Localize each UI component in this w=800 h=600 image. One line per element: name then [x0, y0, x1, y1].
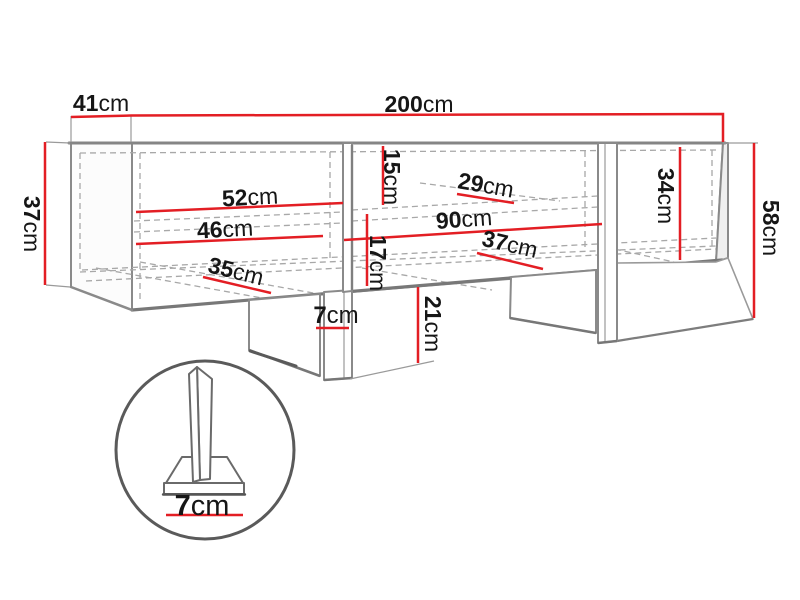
dimension-label-leg-detail-base-width: 7cm [175, 490, 230, 522]
dimension-label-leg-height: 21cm [420, 296, 446, 352]
dimension-label-middle-lower-gap: 17cm [365, 235, 391, 291]
dimension-label-leg-width: 7cm [313, 302, 358, 329]
dimension-diagram: 41cm200cm37cm58cm52cm46cm35cm15cm29cm90c… [0, 0, 800, 600]
diagram-canvas: 41cm200cm37cm58cm52cm46cm35cm15cm29cm90c… [0, 0, 800, 600]
dimension-label-height-left: 37cm [19, 196, 45, 252]
dimension-label-left-shelf-lower-width: 46cm [196, 215, 254, 244]
dimension-label-width-total: 200cm [384, 91, 453, 117]
right-leg [510, 270, 596, 333]
right-partition [598, 143, 617, 343]
dimension-line-width-total [131, 114, 723, 142]
dimension-label-right-inner-height: 34cm [653, 168, 679, 224]
dimension-label-middle-upper-gap: 15cm [379, 149, 405, 205]
middle-partition [343, 143, 352, 292]
dimension-label-height-total-right: 58cm [758, 200, 784, 256]
dimension-label-depth-top: 41cm [73, 90, 129, 116]
right-floor-panel [617, 258, 753, 341]
dimension-label-left-shelf-upper-width: 52cm [221, 183, 279, 212]
